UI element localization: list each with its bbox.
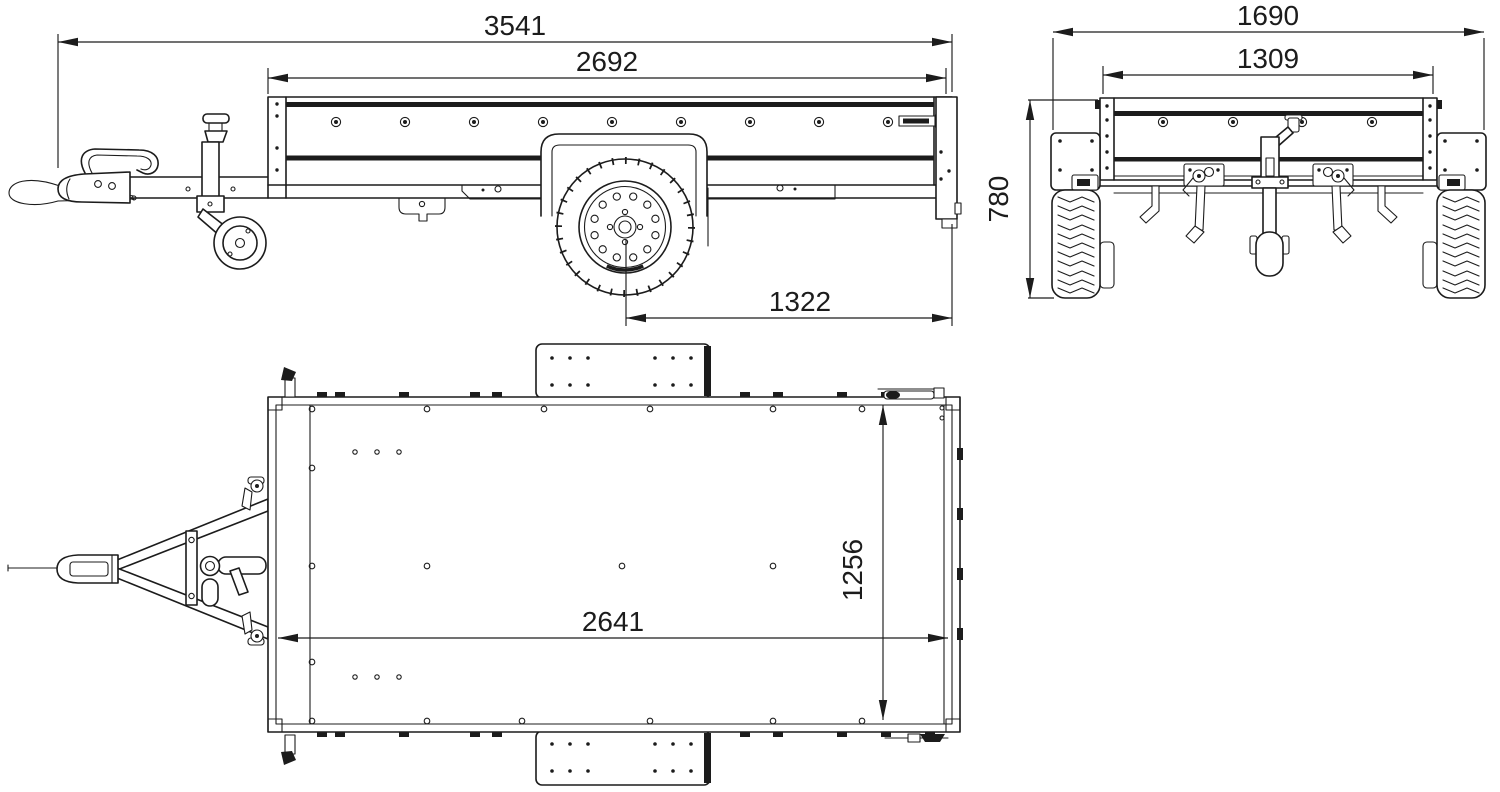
jockey-wheel [197,114,266,269]
front-latch-right [1313,164,1354,243]
front-view: 1690 1309 780 [983,0,1486,298]
drawbar-a-frame [8,499,268,639]
front-bracket-right [1378,186,1397,223]
top-view: 2641 1256 [8,344,963,785]
dim-label-1309: 1309 [1237,43,1299,74]
dim-label-2641: 2641 [582,606,644,637]
dimension-body-length: 2692 [268,46,946,94]
trailer-technical-drawing: 3541 2692 1322 [0,0,1500,792]
left-mudguard [1051,133,1100,190]
dim-label-1690: 1690 [1237,0,1299,31]
bottom-mounting-plate [536,731,711,785]
dimension-body-width: 1309 [1103,43,1433,94]
dim-label-3541: 3541 [484,10,546,41]
coupler-handle [81,149,158,174]
dim-label-1256: 1256 [837,539,868,601]
left-wheel [1052,190,1114,298]
hitch-coupler [58,149,158,203]
right-wheel [1423,190,1485,298]
right-mudguard [1437,133,1486,190]
wheel-assembly [541,134,708,295]
dim-label-780: 780 [983,176,1014,223]
rear-panel [936,97,961,228]
wheel-rim [579,181,671,273]
jockey-clamp-top [201,557,267,607]
dim-label-2692: 2692 [576,46,638,77]
front-bracket-left [1140,186,1159,223]
dim-label-1322: 1322 [769,286,831,317]
side-view: 3541 2692 1322 [9,10,961,326]
top-mounting-plate [536,344,711,398]
front-latch-left [1183,164,1224,243]
